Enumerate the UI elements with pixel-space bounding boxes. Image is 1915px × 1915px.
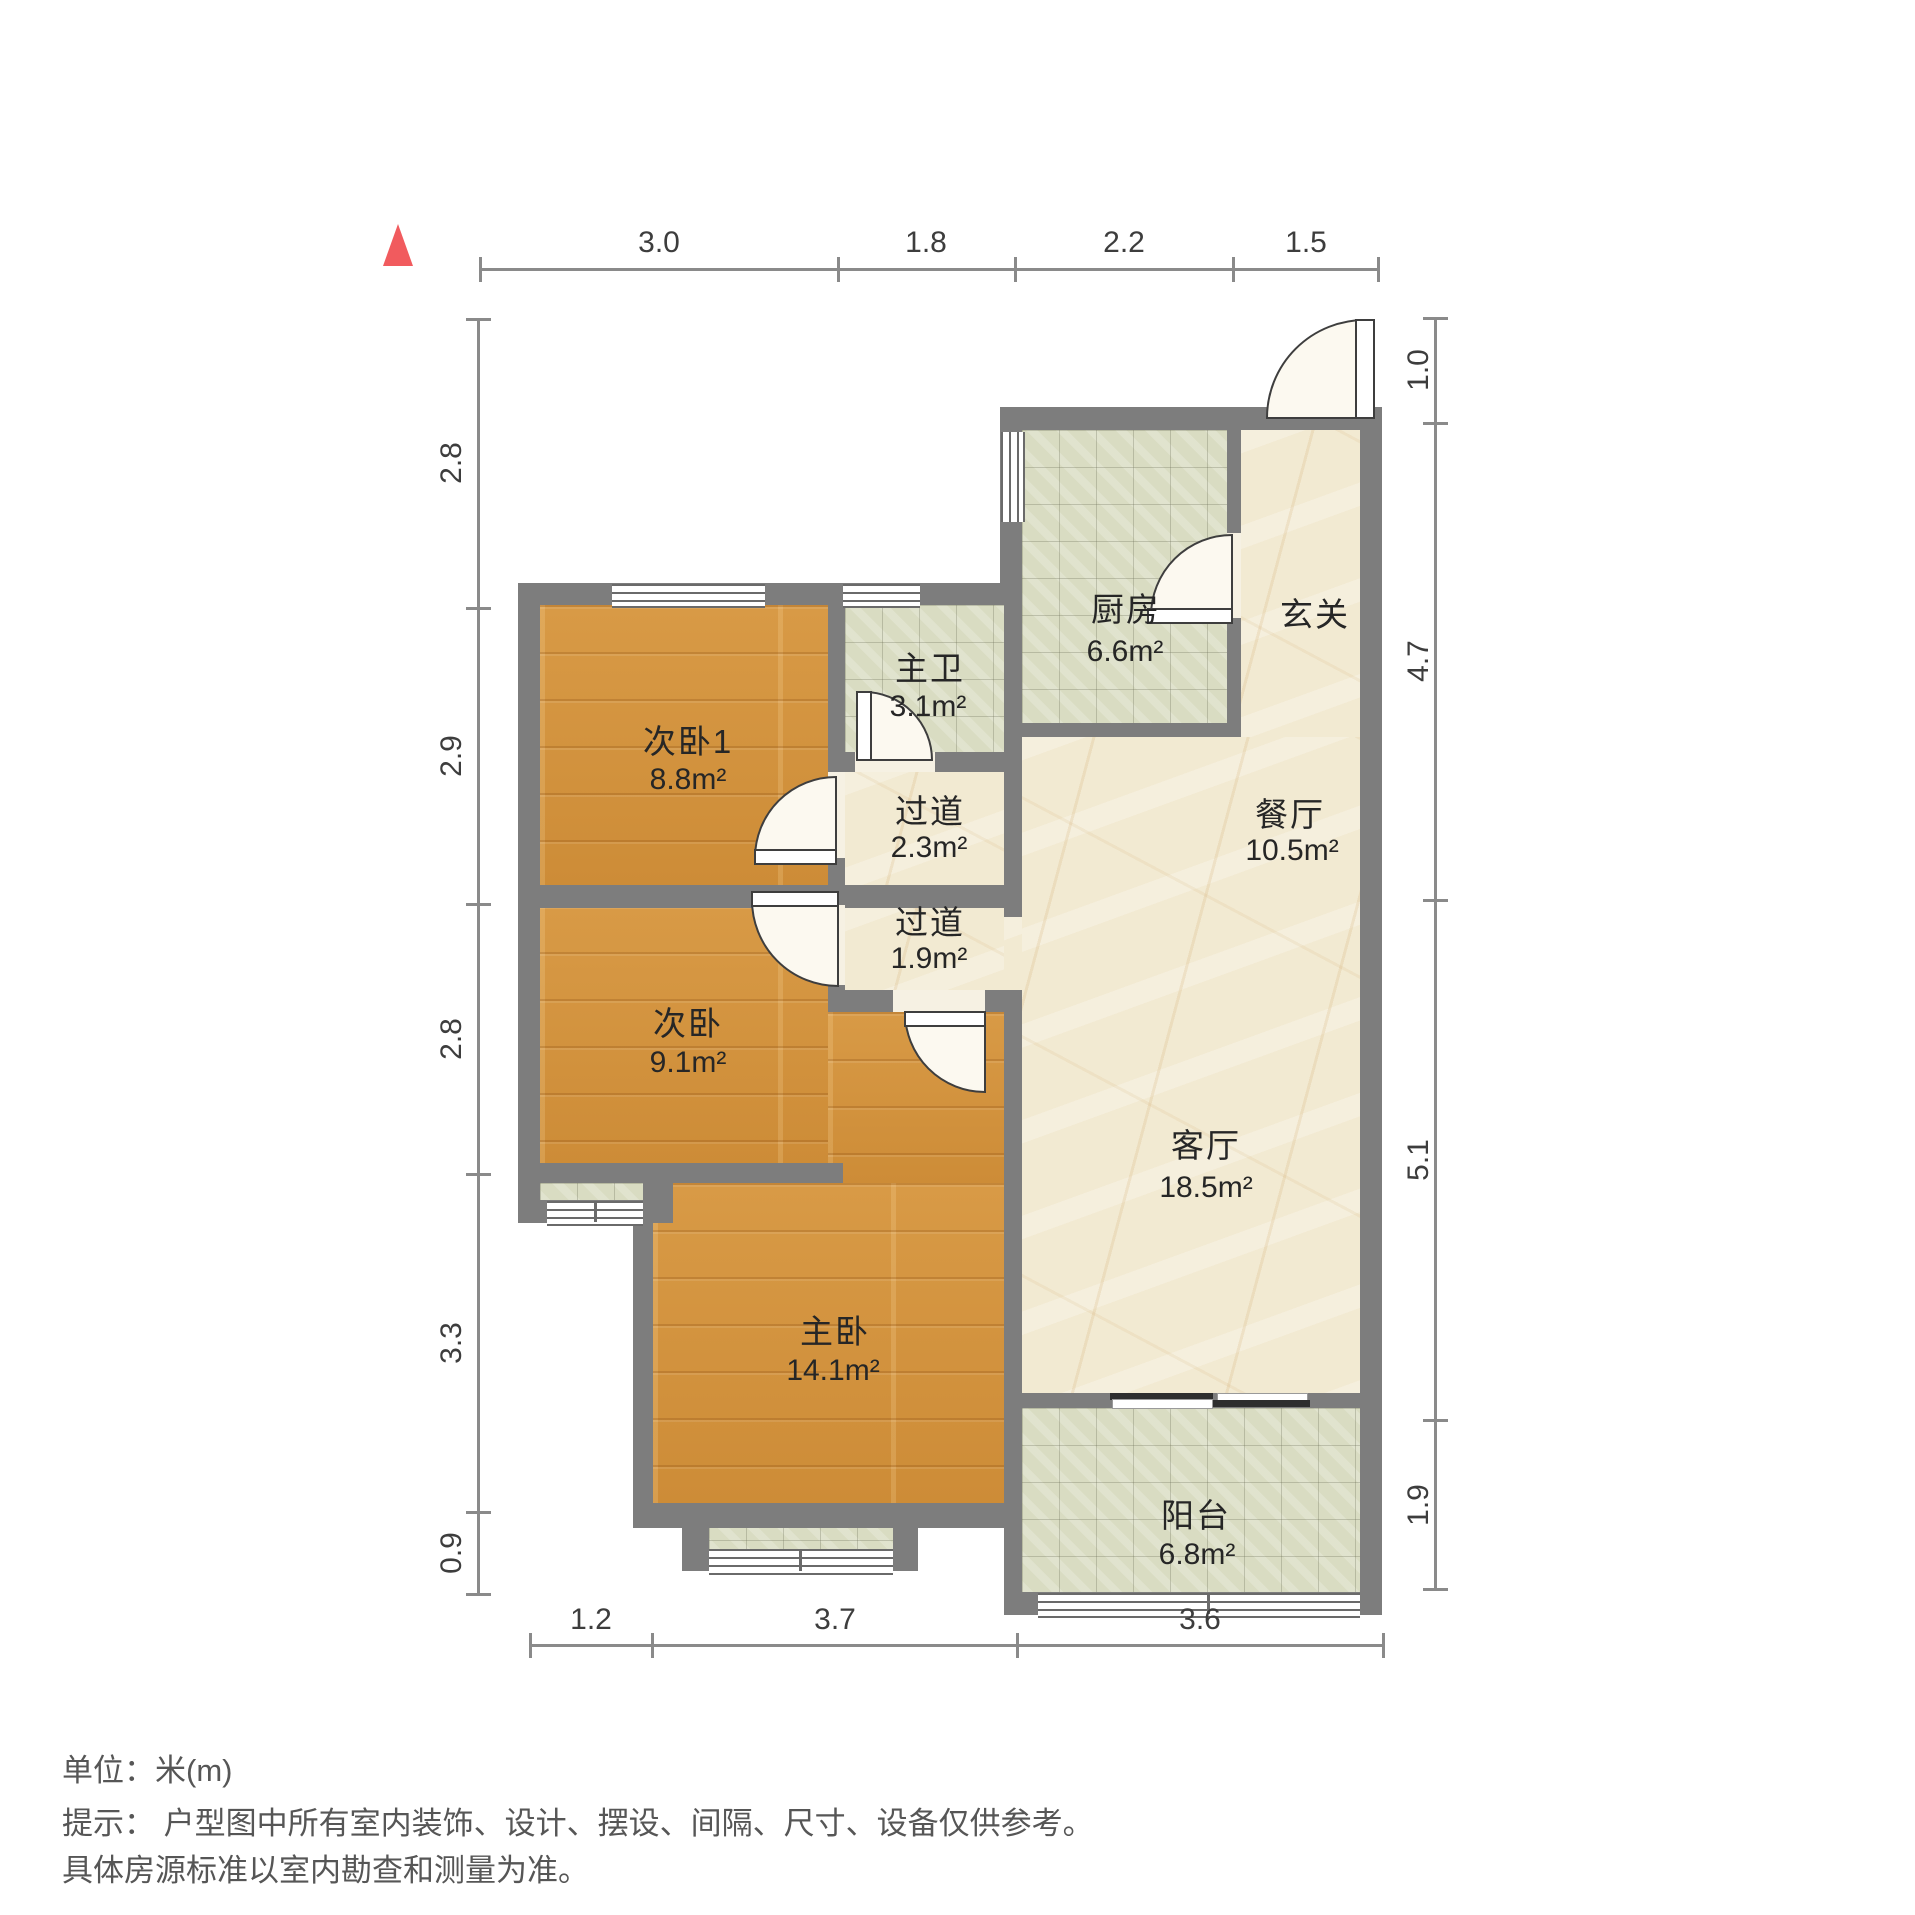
dim-line-right xyxy=(1434,318,1437,1590)
label-hallway-1: 过道 xyxy=(895,785,965,833)
dim-left-1: 2.8 xyxy=(435,408,469,518)
label-balcony: 阳台 xyxy=(1161,1489,1231,1537)
sliding-door-track-right xyxy=(1213,1400,1310,1407)
window-bedroom2-1-top xyxy=(612,584,765,608)
dim-bottom-3: 3.6 xyxy=(1145,1603,1255,1637)
dim-left-4: 3.3 xyxy=(435,1288,469,1398)
wall-master-bottom xyxy=(633,1503,1022,1528)
opening-kitchen-door xyxy=(1227,533,1241,618)
dim-tick xyxy=(466,1593,491,1596)
opening-bath-door xyxy=(855,752,935,772)
label-hallway-2-area: 1.9m² xyxy=(891,942,968,976)
note-disclaimer-2: 具体房源标准以室内勘查和测量为准。 xyxy=(62,1845,589,1890)
floor-plan: 3.0 1.8 2.2 1.5 1.2 3.7 3.6 2.8 2.9 2.8 … xyxy=(0,0,1915,1915)
note-disclaimer: 提示： 户型图中所有室内装饰、设计、摆设、间隔、尺寸、设备仅供参考。 xyxy=(62,1798,1094,1843)
dim-line-top xyxy=(480,268,1378,271)
floorplan-page: { "rooms": [ {"name": "次卧1", "area": "8.… xyxy=(0,0,1915,1915)
label-dining: 餐厅 xyxy=(1255,788,1325,836)
window-kitchen-side xyxy=(1001,432,1025,522)
label-bedroom2-area: 9.1m² xyxy=(650,1046,727,1080)
dim-tick xyxy=(1377,257,1380,282)
dim-tick xyxy=(466,607,491,610)
north-arrow-icon xyxy=(383,224,413,266)
wall-right xyxy=(1360,407,1382,1615)
label-bedroom2-1: 次卧1 xyxy=(643,715,733,763)
wall-bay-stub-right xyxy=(893,1528,918,1571)
dim-right-3: 5.1 xyxy=(1402,1105,1436,1215)
dim-left-3: 2.8 xyxy=(435,984,469,1094)
dim-tick xyxy=(651,1633,654,1658)
dim-top-3: 2.2 xyxy=(1069,226,1179,260)
label-kitchen-area: 6.6m² xyxy=(1087,635,1164,669)
dim-top-4: 1.5 xyxy=(1251,226,1361,260)
dim-tick xyxy=(837,257,840,282)
entry-door-leaf xyxy=(1356,320,1374,418)
label-bedroom2: 次卧 xyxy=(653,997,723,1045)
wall-bedroom2-bottom xyxy=(540,1163,843,1183)
dim-tick xyxy=(1423,899,1448,902)
dim-left-2: 2.9 xyxy=(435,701,469,811)
wall-master-left xyxy=(633,1223,653,1528)
wall-master-right xyxy=(1004,1012,1022,1592)
wall-kitchen-bottom xyxy=(1022,723,1241,737)
dim-top-2: 1.8 xyxy=(871,226,981,260)
label-master-bedroom: 主卧 xyxy=(800,1305,870,1353)
dim-top-1: 3.0 xyxy=(604,226,714,260)
dim-line-bottom xyxy=(530,1644,1383,1647)
window-mullion xyxy=(594,1201,597,1222)
wall-upper-left xyxy=(518,583,1022,605)
entry-door-arc xyxy=(1267,320,1365,418)
label-master-bedroom-area: 14.1m² xyxy=(786,1354,879,1388)
floor-kitchen xyxy=(1022,430,1227,723)
dim-tick xyxy=(466,318,491,321)
dim-tick xyxy=(466,903,491,906)
dim-right-2: 4.7 xyxy=(1402,606,1436,716)
wall-top xyxy=(1000,407,1382,430)
label-kitchen: 厨房 xyxy=(1091,583,1161,631)
floor-hallway-gap xyxy=(1004,917,1022,990)
dim-right-4: 1.9 xyxy=(1402,1450,1436,1560)
dim-tick xyxy=(529,1633,532,1658)
dim-tick xyxy=(466,1511,491,1514)
label-master-bath-area: 3.1m² xyxy=(890,690,967,724)
sliding-door-panel-left xyxy=(1112,1399,1213,1409)
dim-tick xyxy=(1232,257,1235,282)
dim-right-1: 1.0 xyxy=(1402,315,1436,425)
dim-tick xyxy=(1423,1588,1448,1591)
wall-corridor-right xyxy=(1004,583,1022,917)
floor-foyer xyxy=(1241,430,1360,737)
label-hallway-1-area: 2.3m² xyxy=(891,831,968,865)
opening-bedroom2-1-door xyxy=(828,772,845,858)
dim-tick xyxy=(1014,257,1017,282)
label-balcony-area: 6.8m² xyxy=(1159,1538,1236,1572)
dim-tick xyxy=(466,1173,491,1176)
opening-master-door xyxy=(893,990,985,1012)
wall-bay-stub-left xyxy=(682,1528,709,1571)
label-dining-area: 10.5m² xyxy=(1245,834,1338,868)
note-unit: 单位：米(m) xyxy=(62,1745,232,1790)
dim-line-left xyxy=(477,319,480,1595)
label-foyer: 玄关 xyxy=(1280,588,1350,636)
floor-master-bedroom-upper xyxy=(828,1012,1004,1183)
opening-bedroom2-door xyxy=(828,905,845,985)
label-hallway-2: 过道 xyxy=(895,896,965,944)
window-mullion xyxy=(799,1549,802,1571)
dim-tick xyxy=(479,257,482,282)
label-living-area: 18.5m² xyxy=(1159,1171,1252,1205)
floor-bay-bedroom2 xyxy=(540,1183,643,1201)
dim-tick xyxy=(1382,1633,1385,1658)
dim-bottom-1: 1.2 xyxy=(536,1603,646,1637)
label-bedroom2-1-area: 8.8m² xyxy=(650,763,727,797)
dim-tick xyxy=(1423,1419,1448,1422)
dim-tick xyxy=(1016,1633,1019,1658)
dim-left-5: 0.9 xyxy=(435,1498,469,1608)
label-master-bath: 主卫 xyxy=(895,642,965,690)
label-living: 客厅 xyxy=(1171,1119,1241,1167)
dim-bottom-2: 3.7 xyxy=(780,1603,890,1637)
window-bath-top xyxy=(843,584,920,608)
